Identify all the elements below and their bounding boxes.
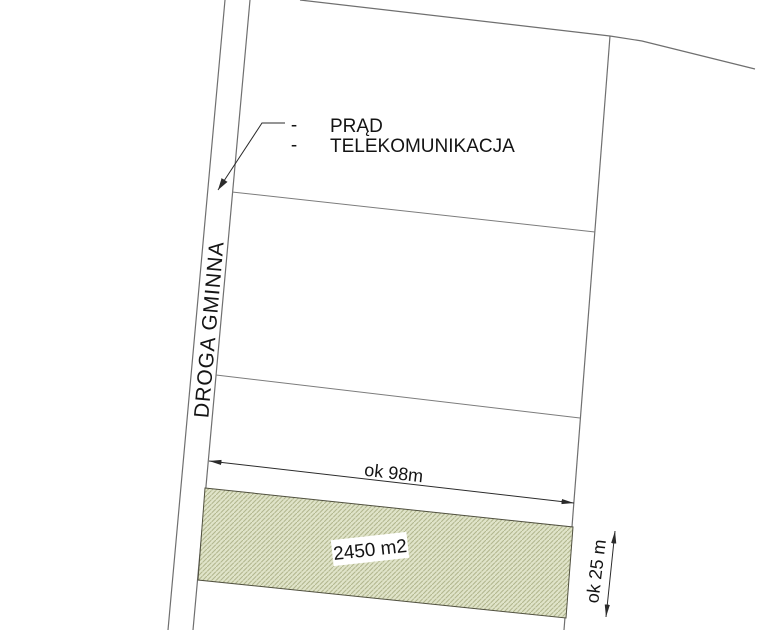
depth-dimension: ok 25 m <box>582 531 615 617</box>
highlighted-parcel: 2450 m2 <box>198 488 573 618</box>
top-boundary-line <box>300 0 610 36</box>
plot-plan: DROGA GMINNA 2450 m2 ok 98m ok 25 m <box>0 0 768 630</box>
utility-item-telecom: TELEKOMUNIKACJA <box>330 136 515 157</box>
depth-dimension-text: ok 25 m <box>582 538 610 604</box>
road-label: DROGA GMINNA <box>190 240 228 419</box>
utilities-leader-line <box>218 123 285 190</box>
plan-drawing: DROGA GMINNA 2450 m2 ok 98m ok 25 m <box>0 0 768 630</box>
division-line-2 <box>216 375 580 418</box>
division-line-1 <box>232 192 595 232</box>
utility-bullet-1: - <box>291 115 297 136</box>
top-right-boundary-line <box>610 36 755 69</box>
utilities-note: - PRĄD - TELEKOMUNIKACJA <box>218 115 515 190</box>
utility-bullet-2: - <box>291 135 297 156</box>
utility-item-electricity: PRĄD <box>330 116 383 137</box>
width-dimension-text: ok 98m <box>363 460 424 487</box>
